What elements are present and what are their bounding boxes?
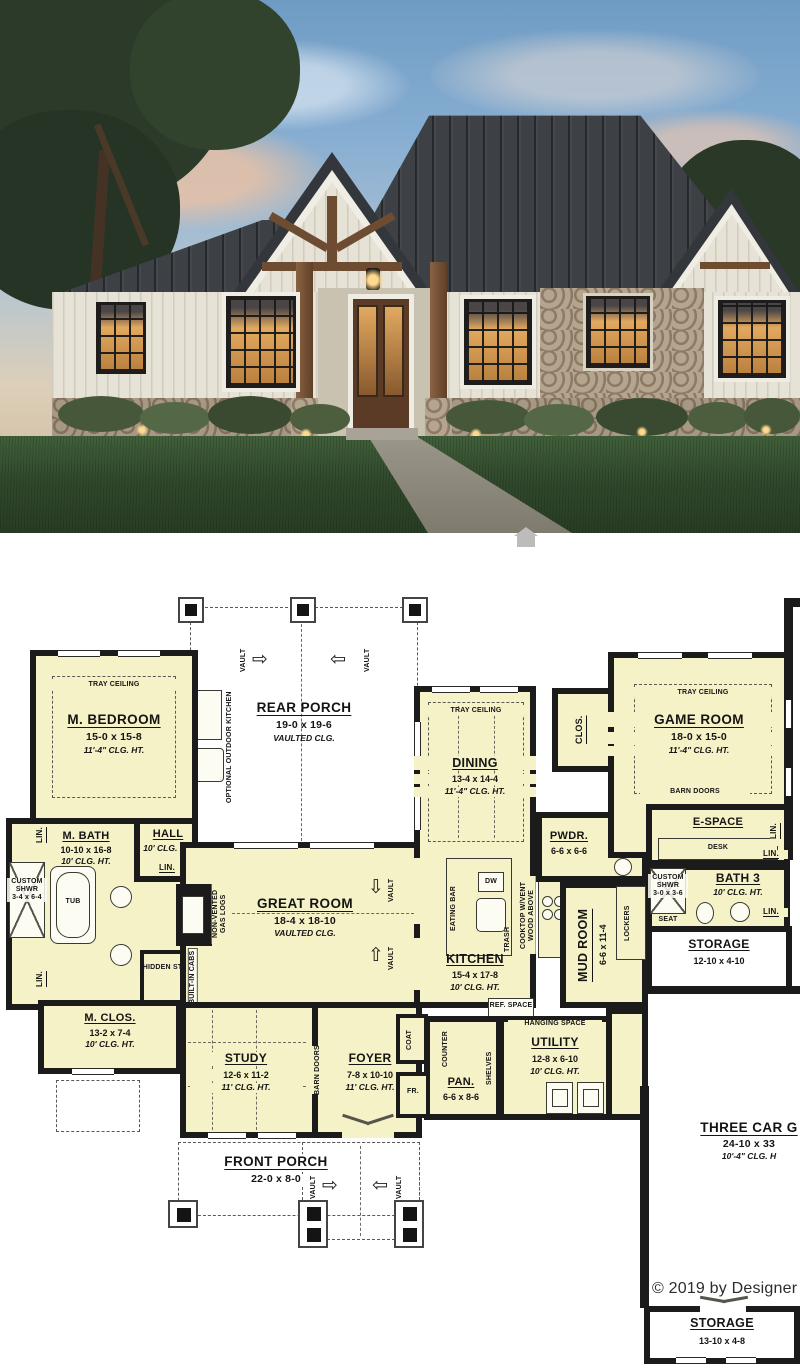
porch-column-core [403,1228,417,1242]
room-clg-m-bedroom: 11'-4" CLG. HT. [30,746,198,756]
window-marker [785,768,792,796]
eating-bar-label: EATING BAR [450,870,458,946]
ref-space-label: REF. SPACE [488,1002,534,1010]
cooktop-burner [542,909,553,920]
closet-label: CLOS. [574,706,584,754]
dryer [577,1082,604,1114]
bath3-shower-label: CUSTOM SHWR [648,874,688,890]
porch-column-core [403,1207,417,1221]
window-marker [638,652,682,659]
room-dim-study: 12-6 x 11-2 [190,1070,302,1080]
room-clg-study: 11' CLG. HT. [190,1083,302,1093]
wall-right-stub [790,598,800,607]
porch-column [402,597,428,623]
front-porch-ridge [360,1146,361,1236]
tray-ceiling-label: TRAY CEILING [52,681,176,689]
room-dim-mud: 6-6 x 11-4 [598,898,608,992]
porch-column-core [297,604,309,616]
room-name-m-clos: M. CLOS. [38,1012,182,1024]
sink [110,886,132,908]
room-dim-storage-right: 12-10 x 4-10 [646,956,792,966]
linen-label: LIN. [770,816,779,846]
vault-label: VAULT [396,1170,404,1204]
window-marker [676,1357,706,1364]
room-name-garage: THREE CAR G [694,1120,800,1135]
house-icon [514,527,538,547]
window-marker [118,650,160,657]
vault-label: VAULT [310,1170,318,1204]
tray-ceiling-outline [428,702,524,842]
lantern-glow [362,268,384,292]
outdoor-kitchen-counter [196,690,222,740]
room-storage-bottom [644,1306,800,1364]
room-name-rear-porch: REAR PORCH [230,700,378,715]
front-door-glass [357,305,378,397]
sink [110,944,132,966]
entry-door-opening [342,1130,394,1138]
vault-arrow-left-icon: ⇦ [330,650,346,669]
vault-arrow-right-icon: ⇨ [322,1176,338,1195]
room-name-hall: HALL [140,828,196,840]
copyright-text: © 2019 by Designer [652,1280,800,1298]
washer-inner [552,1089,568,1107]
window-marker [258,1132,296,1139]
vault-label: VAULT [240,642,248,678]
window [226,296,296,388]
porch-column-core [177,1208,191,1222]
room-clg-kitchen: 10' CLG. HT. [414,983,536,993]
window-marker [432,686,470,693]
room-clg-great-room: VAULTED CLG. [210,929,400,939]
room-clg-rear-porch: VAULTED CLG. [230,734,378,744]
tray-ceiling-label: TRAY CEILING [428,707,524,715]
room-dim-m-clos: 13-2 x 7-4 [38,1028,182,1038]
front-door-glass [383,305,404,397]
room-dim-utility: 12-8 x 6-10 [498,1054,612,1064]
dryer-inner [583,1089,599,1107]
window-marker [708,652,752,659]
linen-label: LIN. [36,820,45,850]
counter-label: COUNTER [442,1026,450,1072]
room-clg-dining: 11'-4" CLG. HT. [414,787,536,797]
room-clg-bath3: 10' CLG. HT. [690,888,786,898]
vault-arrow-right-icon: ⇨ [252,650,268,669]
porch-column [178,597,204,623]
landscape-light [760,424,772,436]
barn-doors-label: BARN DOORS [314,1044,322,1096]
room-name-storage-right: STORAGE [646,938,792,951]
window-marker [234,842,298,849]
fireplace-firebox [182,896,204,934]
opening [414,858,422,924]
built-in-cabs-label: BUILT-IN CABS [188,948,198,1006]
room-dim-game: 18-0 x 15-0 [608,732,790,744]
cooktop-burner [542,896,553,907]
shrub [744,398,800,434]
garage-left-wall [640,1086,649,1308]
cloud [430,30,760,120]
tub-label: TUB [50,898,96,906]
tray-inner-line [458,706,459,838]
window [586,296,650,368]
room-name-m-bedroom: M. BEDROOM [30,712,198,727]
room-dim-m-bedroom: 15-0 x 15-8 [30,732,198,744]
shrub [688,402,748,434]
house-plan-listing-image: ⇨ VAULT ⇦ VAULT REAR PORCH 19-0 x 19-6 V… [0,0,800,1370]
trash-label: TRASH [504,922,512,956]
house-icon-body [517,536,535,547]
master-shower-label: CUSTOM SHWR [7,878,47,894]
room-name-pwdr: PWDR. [540,830,598,842]
vault-label: VAULT [388,874,396,906]
window-marker [72,1068,114,1075]
room-clg-game: 11'-4" CLG. HT. [608,746,790,756]
toilet-bowl [696,902,714,924]
window-marker [726,1357,756,1364]
room-name-study: STUDY [190,1052,302,1065]
room-name-front-porch: FRONT PORCH [196,1154,356,1169]
room-dim-pwdr: 6-6 x 6-6 [536,846,602,856]
porch-column-core [307,1207,321,1221]
master-shower-dim: 3-4 x 6-4 [7,894,47,902]
shrub [140,402,210,434]
room-dim-garage: 24-10 x 33 [694,1139,800,1151]
room-dim-dining: 13-4 x 14-4 [414,774,536,784]
bath3-shower-dim: 3-0 x 3-6 [648,890,688,898]
room-name-storage-bottom: STORAGE [644,1316,800,1330]
house-icon-roof [514,527,538,536]
shrub [524,404,594,436]
shrub [446,400,530,434]
shrub [58,396,144,432]
vault-arrow-up-icon: ⇧ [368,946,384,965]
shrub [290,404,350,434]
sink [730,902,750,922]
coat-label: COAT [406,1022,414,1058]
front-step [346,428,418,440]
garage-top-wall [646,986,800,994]
porch-column-core [185,604,197,616]
porch-column-core [307,1228,321,1242]
study-beam [188,1042,306,1043]
window-marker [310,842,374,849]
room-clg-garage: 10'-4" CLG. H [694,1152,800,1162]
kitchen-sink [476,898,506,932]
room-clg-m-clos: 10' CLG. HT. [38,1040,182,1050]
room-name-m-bath: M. BATH [34,830,138,842]
tree-left [130,0,300,150]
porch-column-core [409,604,421,616]
room-name-game: GAME ROOM [608,712,790,727]
room-name-utility: UTILITY [498,1036,612,1049]
vault-label: VAULT [364,642,372,678]
optional-outdoor-kitchen-label: OPTIONAL OUTDOOR KITCHEN [226,688,234,806]
room-dim-pan: 6-6 x 8-6 [428,1092,494,1102]
right-gable-bracket [700,262,770,269]
washer [546,1082,573,1114]
dishwasher-label: DW [478,878,504,886]
window [96,302,146,374]
lockers-label: LOCKERS [624,894,632,952]
room-clg-utility: 10' CLG. HT. [498,1067,612,1077]
house-photo [0,0,800,533]
vault-arrow-down-icon: ⇩ [368,878,384,897]
room-name-pan: PAN. [428,1076,494,1088]
room-name-great-room: GREAT ROOM [210,896,400,911]
porch-column [290,597,316,623]
room-dim-kitchen: 15-4 x 17-8 [414,970,536,980]
seat-label: SEAT [650,916,686,924]
room-name-dining: DINING [414,756,536,770]
window-marker [480,686,518,693]
great-room-ridge [232,913,414,914]
window-marker [58,650,100,657]
gas-logs-label: NON-VENTED GAS LOGS [212,884,228,944]
linen-label: LIN. [754,850,788,859]
vault-arrow-left-icon: ⇦ [372,1176,388,1195]
outdoor-kitchen-grill [194,748,224,782]
hanging-space-label: HANGING SPACE [508,1020,602,1028]
porch-column [168,1200,198,1228]
window-marker [785,700,792,728]
barn-doors-label: BARN DOORS [640,788,750,796]
porch-column [298,1200,328,1248]
room-name-mud: MUD ROOM [576,890,590,1000]
linen-label: LIN. [36,964,45,994]
landscape-light [136,424,148,436]
room-dim-storage-bottom: 13-10 x 4-8 [644,1336,800,1346]
tray-inner-line [494,706,495,838]
room-dim-great-room: 18-4 x 18-10 [210,916,400,928]
shrub [208,396,292,434]
fr-label: FR. [396,1088,430,1096]
linen-label: LIN. [754,908,788,917]
porch-column [394,1200,424,1248]
window-marker [208,1132,246,1139]
tray-ceiling-label: TRAY CEILING [634,689,772,697]
window [718,300,786,378]
vault-label: VAULT [388,942,396,974]
room-name-bath3: BATH 3 [690,872,786,885]
exterior-pad-outline [56,1080,140,1132]
room-name-kitchen: KITCHEN [414,952,536,966]
cooktop-label: COOKTOP W/VENT WOOD ABOVE [520,876,536,954]
room-dim-rear-porch: 19-0 x 19-6 [230,720,378,732]
gable-truss-post [327,196,337,268]
desk-label: DESK [690,844,746,852]
sink [614,858,632,876]
storage-door-opening [700,1306,746,1313]
window [464,299,532,385]
